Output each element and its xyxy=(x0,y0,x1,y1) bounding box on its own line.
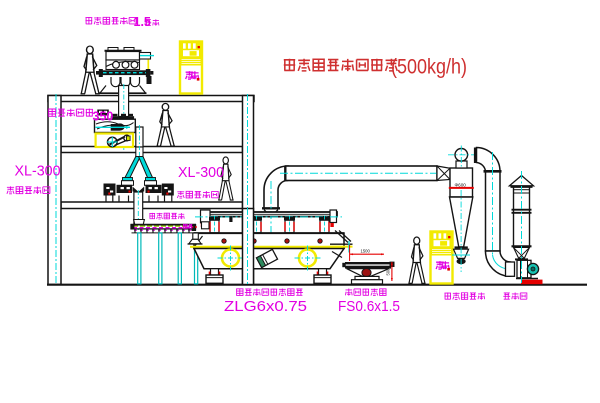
svg-text:350: 350 xyxy=(93,110,114,124)
svg-text:500: 500 xyxy=(386,268,391,276)
svg-text:1.5: 1.5 xyxy=(134,15,151,29)
svg-text:ZLG6x0.75: ZLG6x0.75 xyxy=(224,298,307,315)
svg-text:FS0.6x1.5: FS0.6x1.5 xyxy=(338,298,400,315)
svg-text:1500: 1500 xyxy=(361,249,371,254)
svg-text:Φ600: Φ600 xyxy=(455,183,467,188)
svg-text:XL-300: XL-300 xyxy=(15,164,61,180)
svg-text:XL-300: XL-300 xyxy=(178,165,224,181)
svg-text:(500kg/h): (500kg/h) xyxy=(391,56,467,79)
